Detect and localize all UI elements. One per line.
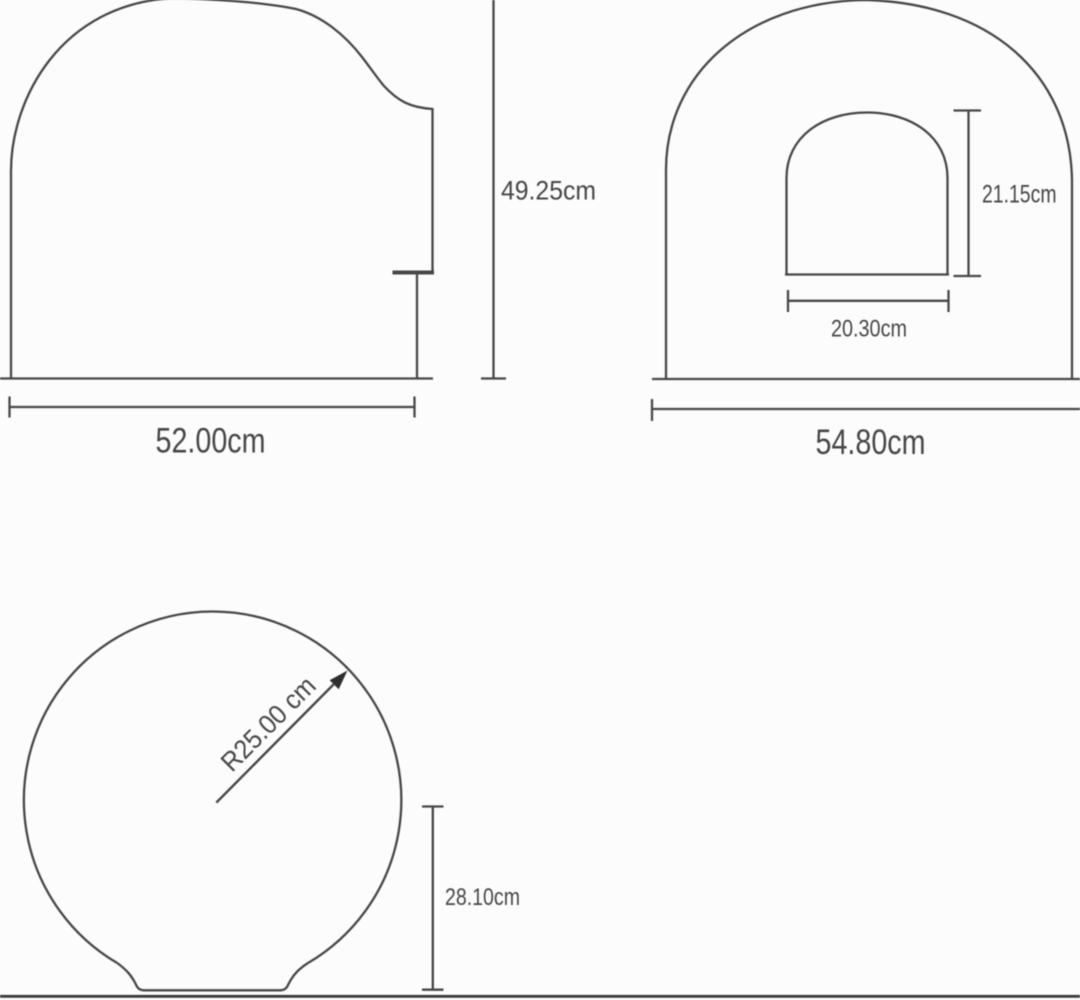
svg-text:54.80cm: 54.80cm	[816, 423, 926, 462]
svg-text:49.25cm: 49.25cm	[501, 176, 596, 206]
svg-text:52.00cm: 52.00cm	[156, 422, 266, 461]
svg-text:20.30cm: 20.30cm	[831, 316, 907, 343]
svg-text:28.10cm: 28.10cm	[445, 884, 520, 911]
svg-text:21.15cm: 21.15cm	[982, 181, 1057, 209]
